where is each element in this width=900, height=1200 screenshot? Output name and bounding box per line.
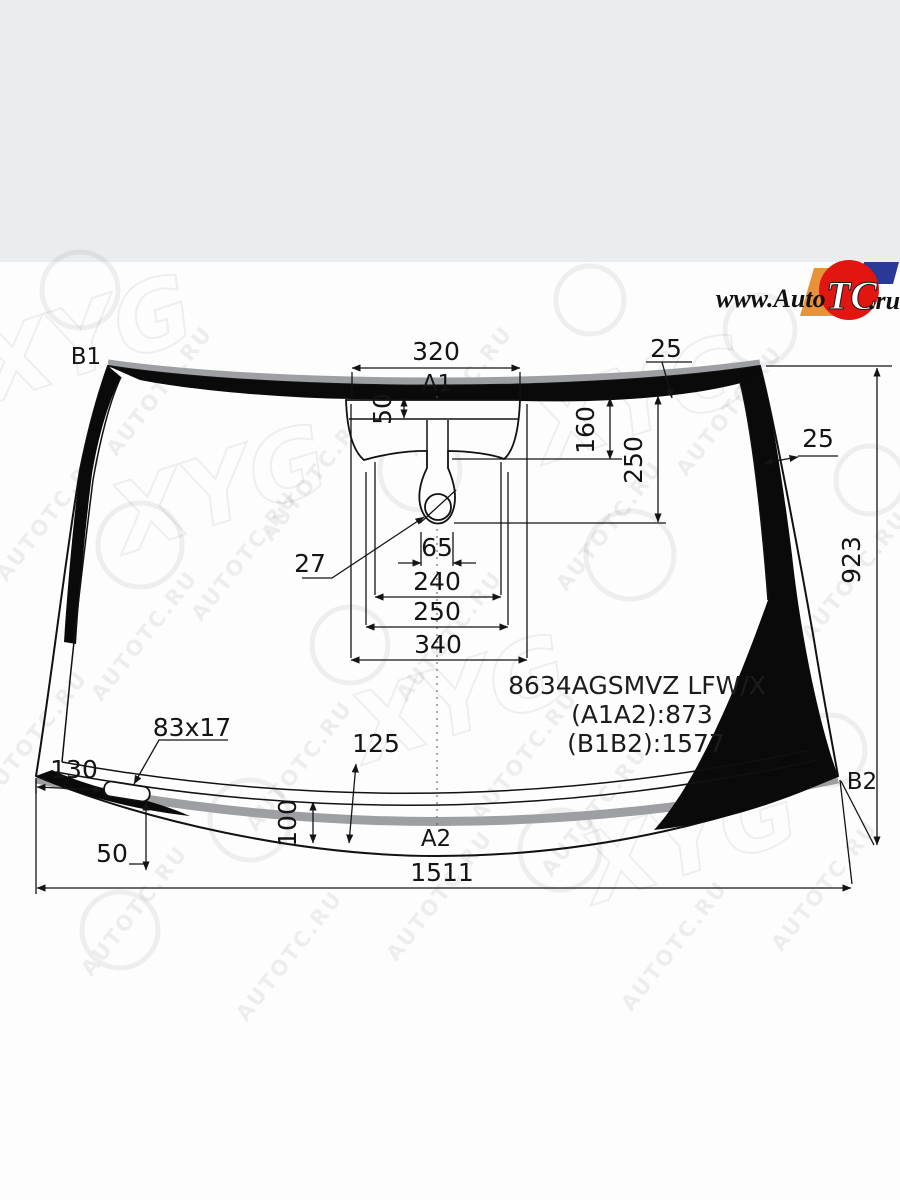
dim-250s-label: 250 bbox=[619, 436, 648, 484]
dim-320-label: 320 bbox=[412, 337, 460, 366]
part-code: 8634AGSMVZ LFW/X bbox=[508, 671, 766, 700]
dim-923-label: 923 bbox=[837, 536, 866, 584]
label-a1: A1 bbox=[422, 371, 452, 397]
dim-160-label: 160 bbox=[571, 406, 600, 454]
dim-125-label: 125 bbox=[352, 729, 400, 758]
label-b1: B1 bbox=[71, 344, 101, 370]
top-gray-band bbox=[0, 0, 900, 262]
dim-83x17-label: 83x17 bbox=[153, 713, 231, 742]
part-a1a2: (A1A2):873 bbox=[571, 700, 713, 729]
dim-1511-label: 1511 bbox=[410, 858, 474, 887]
dim-50-label: 50 bbox=[368, 393, 397, 425]
dim-100-label: 100 bbox=[273, 799, 302, 847]
dim-25-top-label: 25 bbox=[650, 334, 682, 363]
label-a2: A2 bbox=[421, 826, 451, 852]
label-b2: B2 bbox=[847, 769, 877, 795]
dim-65-label: 65 bbox=[421, 533, 453, 562]
dim-25-side-label: 25 bbox=[802, 424, 834, 453]
dim-50bl-label: 50 bbox=[96, 839, 128, 868]
dim-130-label: 130 bbox=[50, 755, 98, 784]
windshield-diagram-page: XYG XYG XYG XYG XYG AUTOTC.RU AUTOTC.RU … bbox=[0, 0, 900, 1200]
dim-240-label: 240 bbox=[413, 567, 461, 596]
dim-27-label: 27 bbox=[294, 549, 326, 578]
dim-340-label: 340 bbox=[414, 630, 462, 659]
logo-text-prefix: www.Auto bbox=[716, 284, 826, 313]
windshield-diagram-svg: XYG XYG XYG XYG XYG AUTOTC.RU AUTOTC.RU … bbox=[0, 0, 900, 1200]
logo-text-suffix: .ru bbox=[869, 286, 900, 315]
dim-250-label: 250 bbox=[413, 597, 461, 626]
part-b1b2: (B1B2):1577 bbox=[567, 729, 725, 758]
